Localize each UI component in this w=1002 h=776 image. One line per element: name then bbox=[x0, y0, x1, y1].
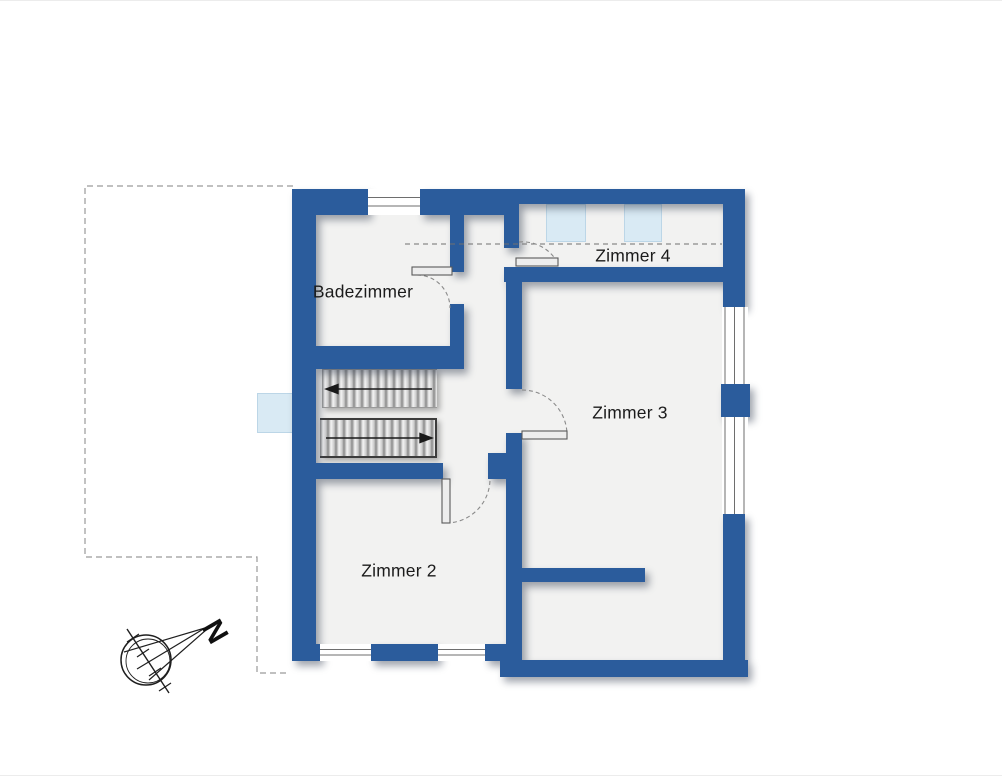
windows-layer bbox=[0, 1, 1002, 775]
window-right-2 bbox=[722, 417, 748, 514]
floorplan-canvas: N Badezimmer Zimmer 4 Zimmer 3 Zimmer 2 bbox=[0, 0, 1002, 776]
room-label-badezimmer: Badezimmer bbox=[313, 282, 413, 303]
window-bottom-1 bbox=[320, 644, 371, 661]
room-label-zimmer3: Zimmer 3 bbox=[592, 403, 668, 424]
window-top bbox=[368, 189, 420, 215]
room-label-zimmer4: Zimmer 4 bbox=[595, 246, 671, 267]
room-label-zimmer2: Zimmer 2 bbox=[361, 561, 437, 582]
window-right-1 bbox=[722, 307, 748, 384]
window-bottom-2 bbox=[438, 644, 485, 661]
